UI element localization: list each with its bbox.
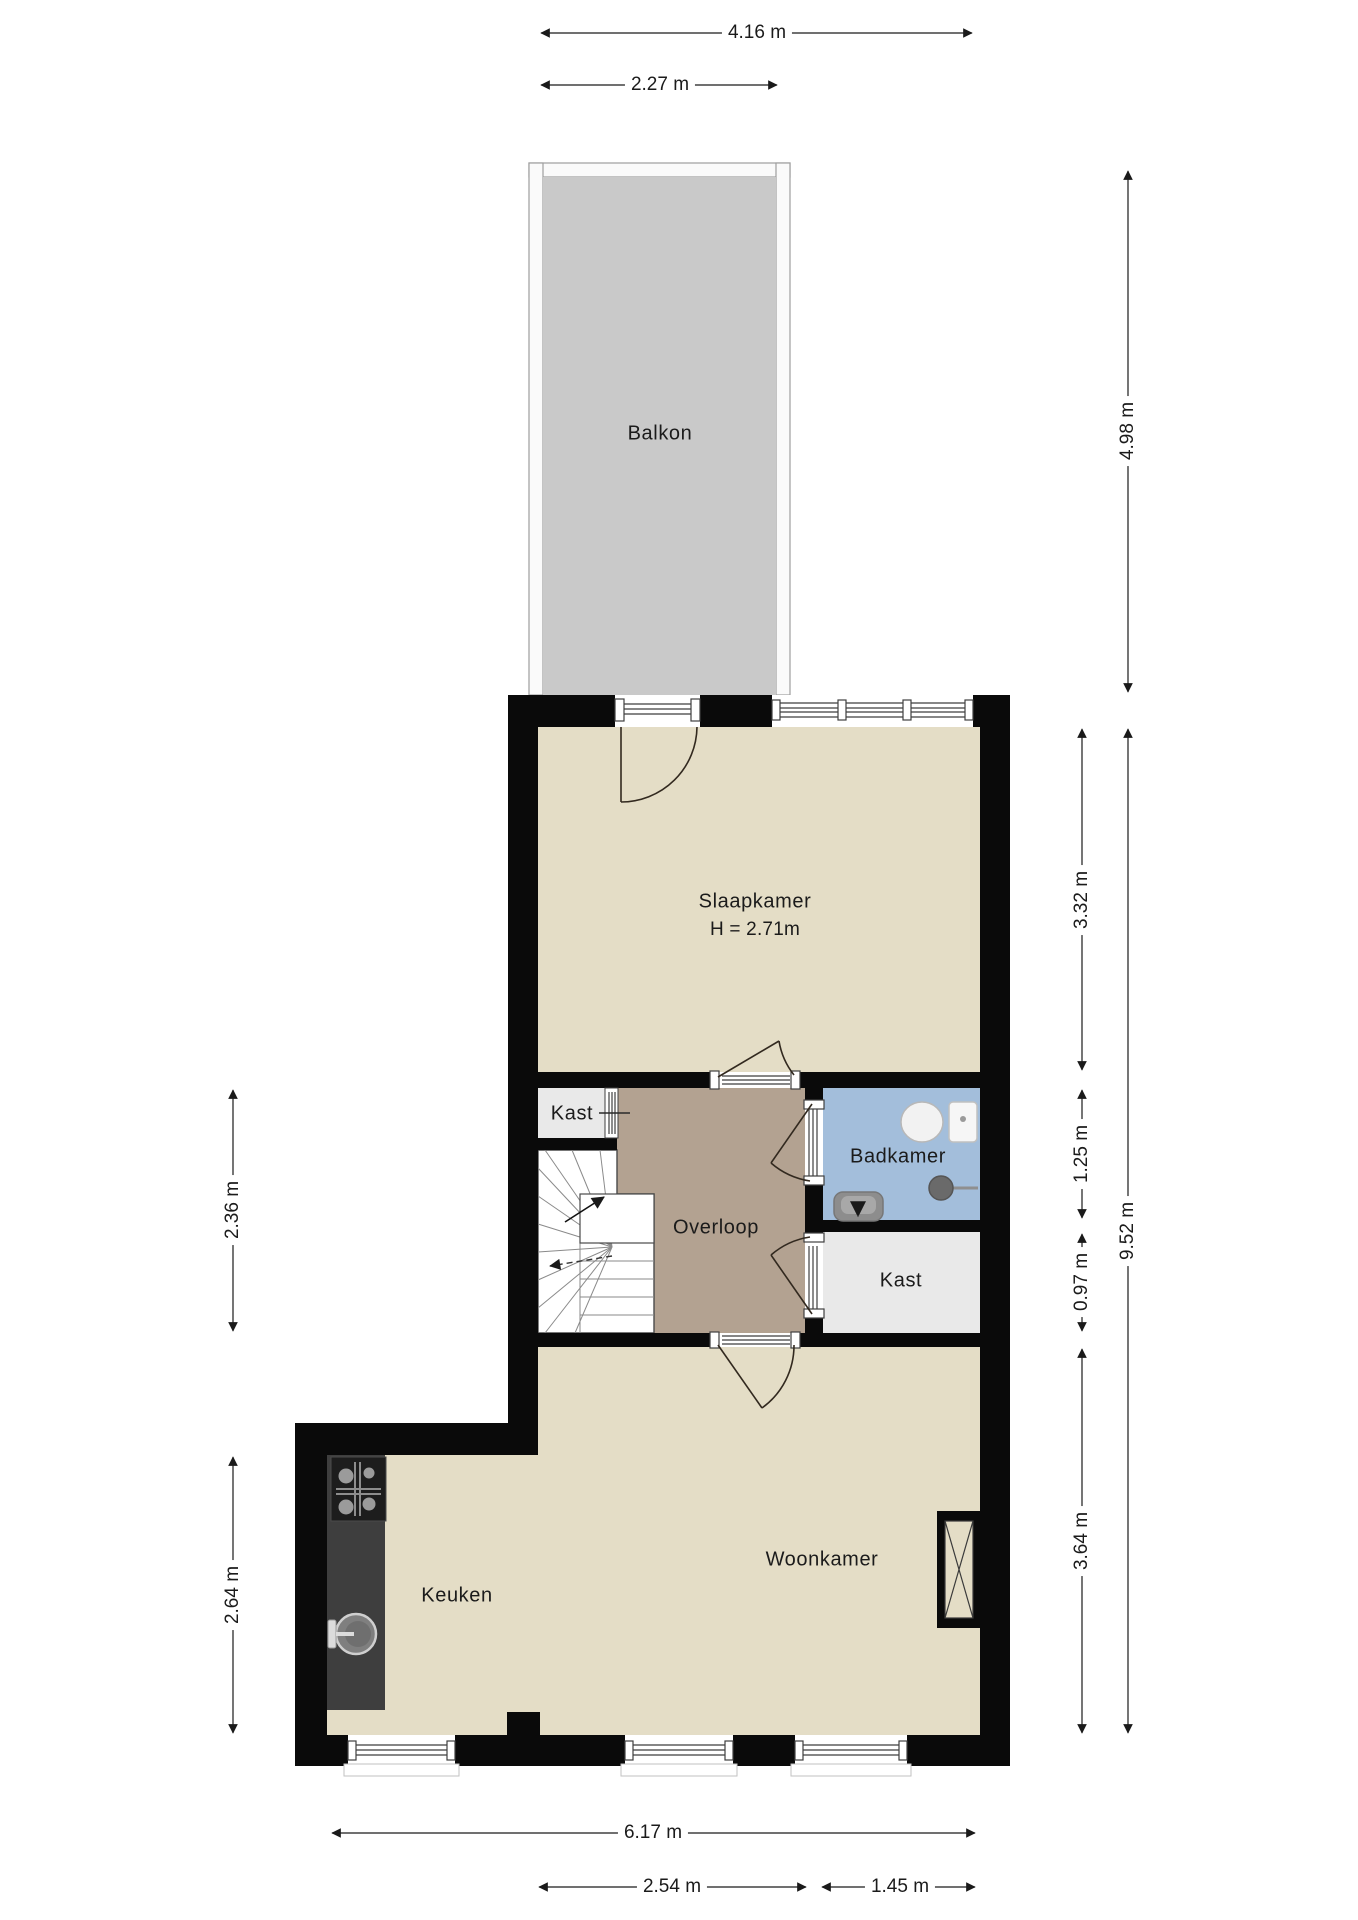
keuken-window <box>344 1735 459 1776</box>
dim-bottom-right: 1.45 m <box>865 1876 935 1898</box>
woonkamer-keuken-floor <box>327 1347 980 1735</box>
dim-right-total: 9.52 m <box>1117 1196 1139 1266</box>
floorplan-canvas: Balkon Slaapkamer H = 2.71m Kast Overloo… <box>0 0 1358 1920</box>
stair-landing <box>580 1194 654 1243</box>
balcony-rail-left <box>529 163 543 695</box>
sink-faucet <box>328 1620 336 1648</box>
overloop-label: Overloop <box>673 1217 759 1240</box>
woonkamer-label: Woonkamer <box>766 1549 879 1572</box>
slaapkamer-window <box>772 695 973 727</box>
keuken-label: Keuken <box>421 1585 492 1608</box>
slaapkamer-height-note: H = 2.71m <box>710 919 800 941</box>
dim-bottom-left: 2.54 m <box>637 1876 707 1898</box>
balcony-rail-right <box>776 163 790 695</box>
balcony-rail-top <box>529 163 790 177</box>
woonkamer-window-right <box>791 1735 911 1776</box>
badkamer-label: Badkamer <box>850 1146 946 1169</box>
dim-right-badkamer: 1.25 m <box>1071 1119 1093 1189</box>
dim-top-total: 4.16 m <box>722 22 792 44</box>
kitchen-sink <box>328 1614 376 1654</box>
kast-onder-label: Kast <box>880 1270 922 1293</box>
floorplan-drawing <box>0 0 1358 1920</box>
dim-right-slaapkamer: 3.32 m <box>1071 865 1093 935</box>
dim-right-kast: 0.97 m <box>1071 1247 1093 1317</box>
woonkamer-window-left <box>621 1735 737 1776</box>
gas-hob <box>331 1457 386 1521</box>
washbasin <box>834 1192 883 1221</box>
dim-right-woonkamer: 3.64 m <box>1071 1506 1093 1576</box>
kitchen-counter <box>327 1455 386 1710</box>
dim-right-balcony: 4.98 m <box>1117 396 1139 466</box>
balkon-label: Balkon <box>628 423 693 446</box>
flue-stub <box>507 1712 540 1735</box>
kast-boven-label: Kast <box>551 1103 593 1126</box>
duct-shaft <box>937 1511 981 1628</box>
dim-left-keuken: 2.64 m <box>222 1560 244 1630</box>
slaapkamer-label: Slaapkamer <box>699 891 812 914</box>
dim-bottom-total: 6.17 m <box>618 1822 688 1844</box>
dim-top-balcony: 2.27 m <box>625 74 695 96</box>
dim-left-stairs: 2.36 m <box>222 1175 244 1245</box>
